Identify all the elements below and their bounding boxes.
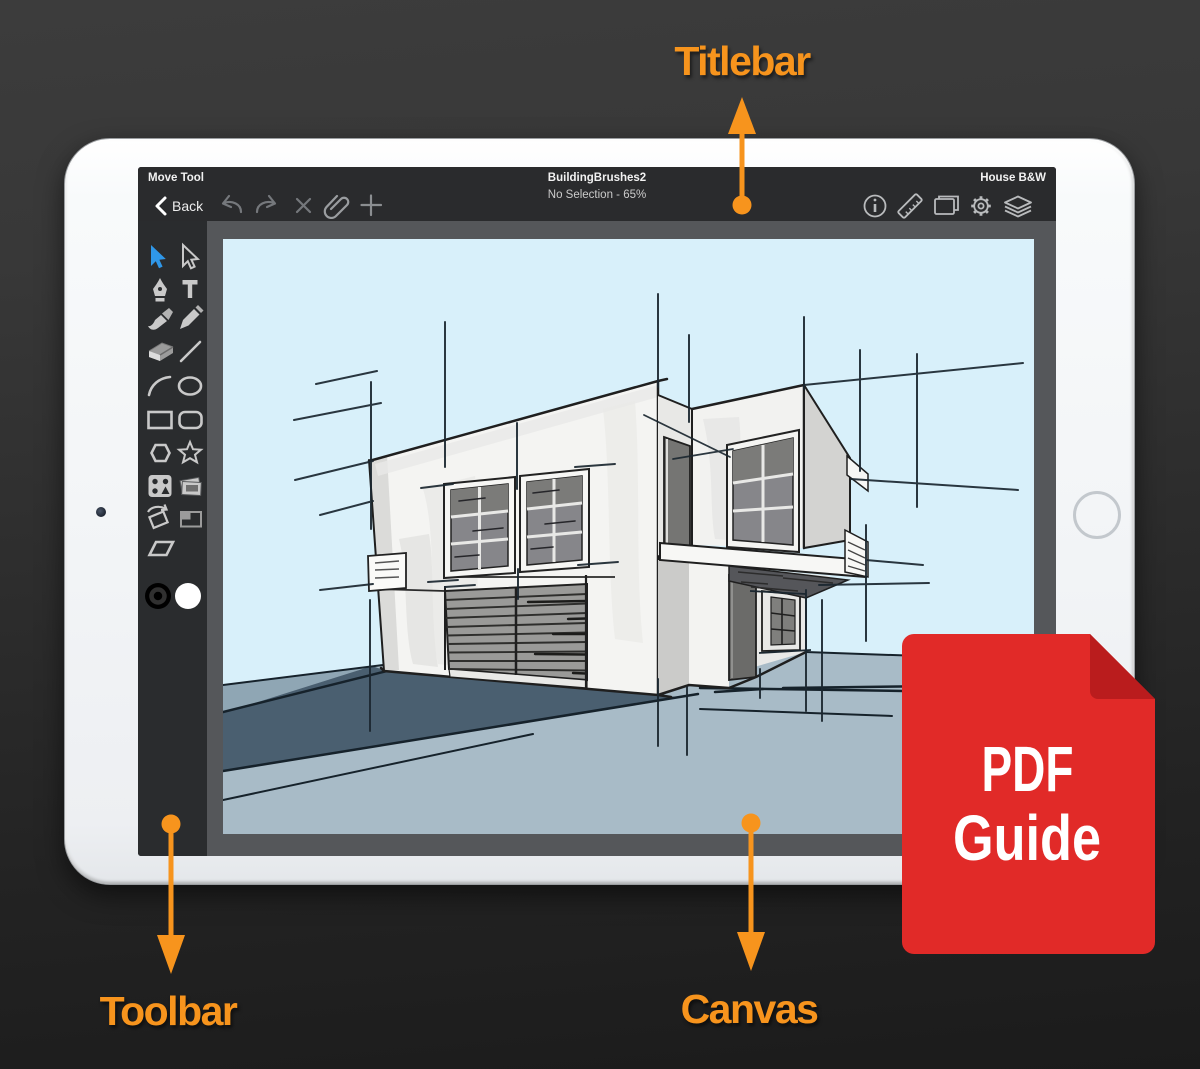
- svg-text:Back: Back: [172, 198, 204, 214]
- svg-text:PDF: PDF: [982, 733, 1074, 805]
- svg-text:Guide: Guide: [953, 802, 1101, 874]
